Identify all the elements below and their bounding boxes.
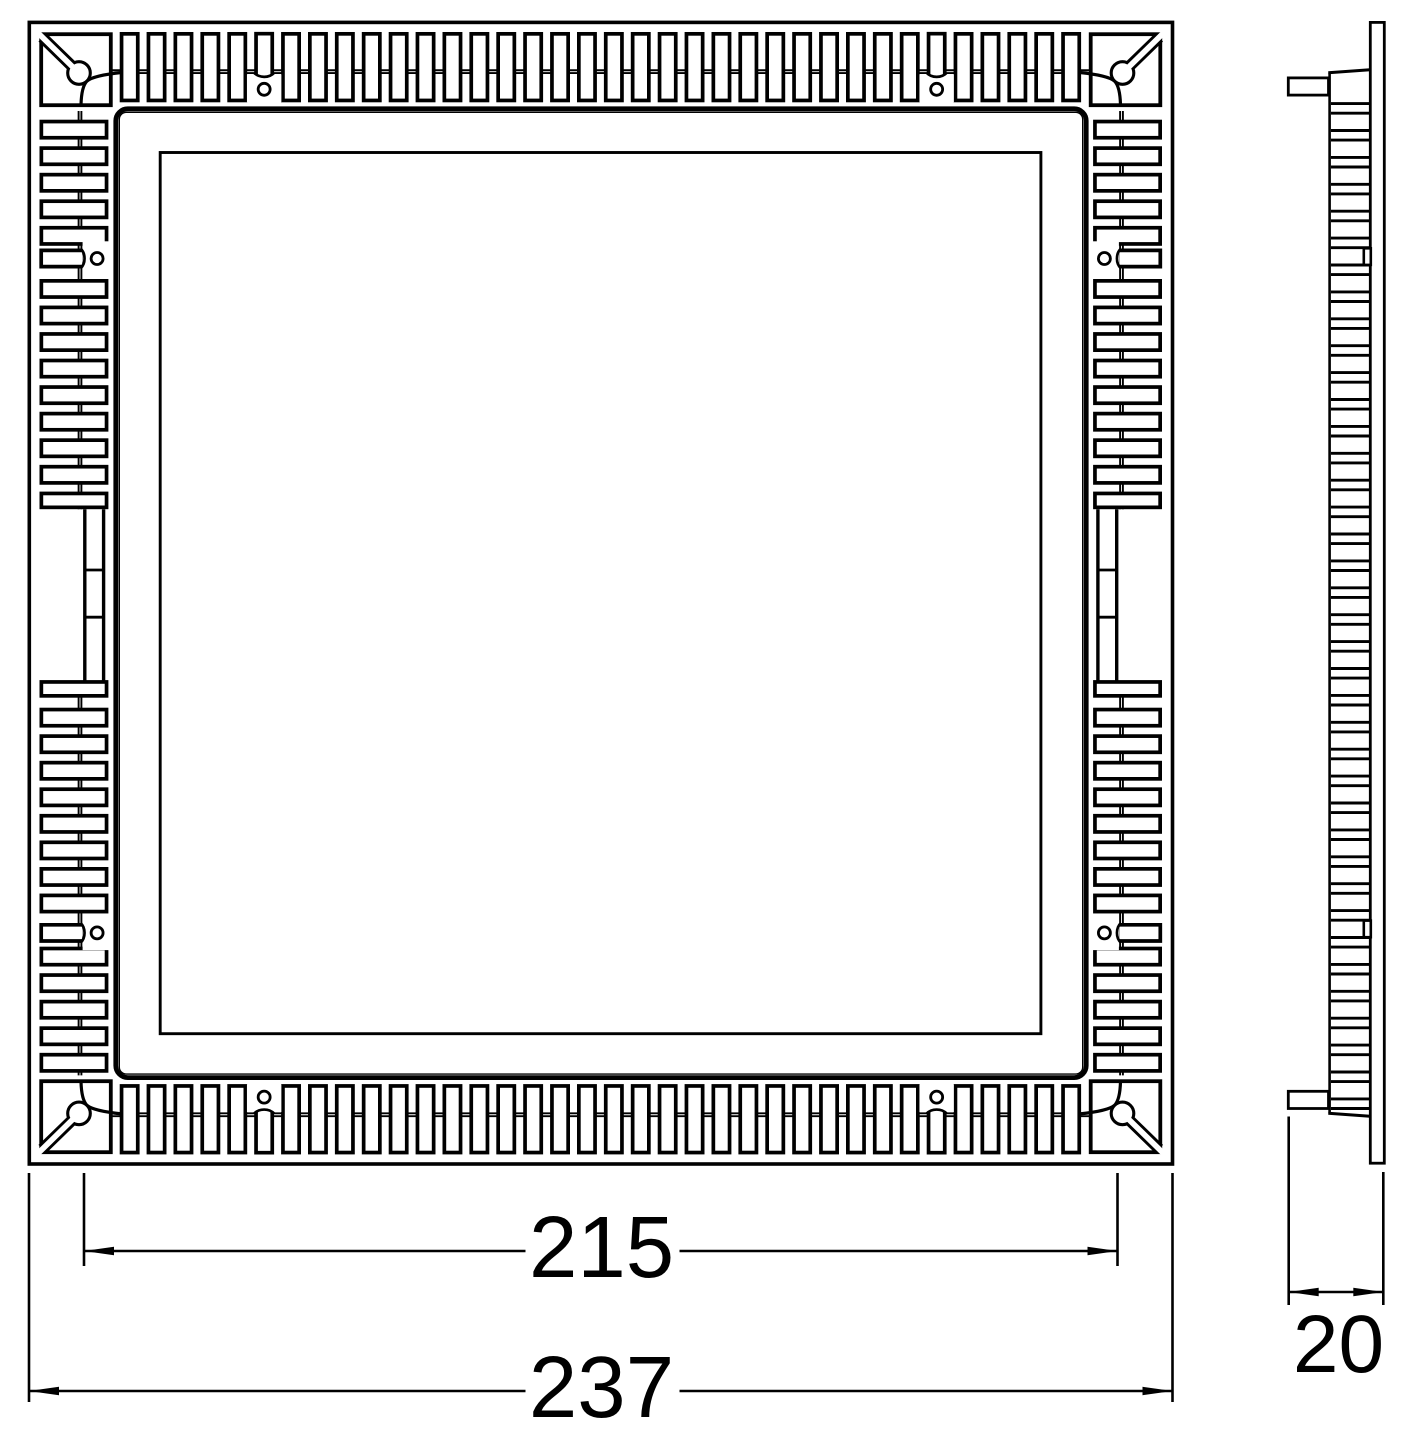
svg-text:215: 215 <box>529 1199 674 1296</box>
svg-text:237: 237 <box>529 1339 674 1433</box>
svg-text:20: 20 <box>1293 1299 1384 1390</box>
